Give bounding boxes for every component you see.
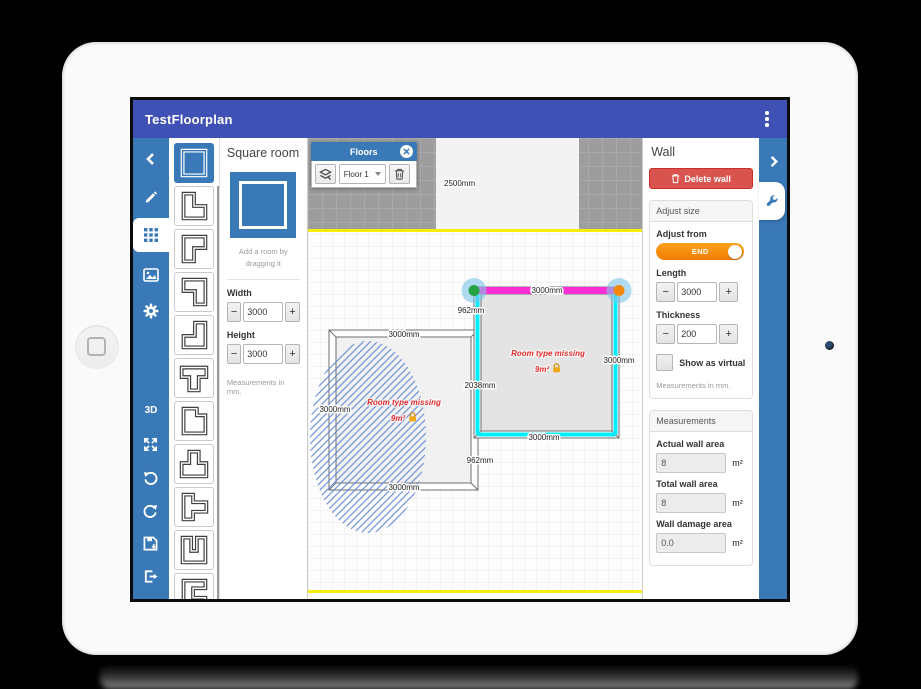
right-toolbar [759,138,787,599]
thickness-minus-button[interactable]: − [656,324,675,344]
tablet-reflection [100,665,858,689]
room-shape-l-notch[interactable] [174,401,214,441]
adjust-from-toggle[interactable]: END [656,243,744,260]
height-label: Height [227,330,300,340]
image-icon [143,268,159,282]
height-stepper: − + [227,344,300,364]
height-minus-button[interactable]: − [227,344,241,364]
kebab-menu-icon[interactable] [759,110,775,128]
width-plus-button[interactable]: + [285,302,299,322]
layers-icon [319,168,332,181]
collapse-right-button[interactable] [759,148,787,174]
save-icon [143,536,158,551]
length-stepper: − + [656,282,746,302]
close-icon[interactable] [400,145,413,158]
collapse-left-button[interactable] [133,144,169,174]
dimension-label: 2038mm [464,381,495,390]
home-button[interactable] [75,325,119,369]
width-label: Width [227,288,300,298]
dimension-label: 962mm [466,456,493,465]
shape-palette [169,138,220,599]
total-wall-area-label: Total wall area [656,479,746,489]
room-shape-l-top-left[interactable] [174,229,214,269]
room-shape-t-down[interactable] [174,358,214,398]
thickness-plus-button[interactable]: + [719,324,738,344]
expand-icon [143,437,158,452]
height-input[interactable] [243,344,283,364]
width-stepper: − + [227,302,300,322]
caret-down-icon [375,172,381,176]
floors-panel-header[interactable]: Floors [311,142,417,161]
floors-panel: Floors Floor 1 [311,142,417,188]
wall-endpoint-start[interactable] [461,278,486,303]
wall-panel-title: Wall [651,145,753,159]
wall-damage-area-label: Wall damage area [656,519,746,529]
room-shape-t-right[interactable] [174,487,214,527]
measurements-group: Measurements Actual wall area m² Total w… [649,410,753,566]
palette-scrollbar[interactable] [217,186,219,599]
room-shape-square[interactable] [174,143,214,183]
total-wall-area-value [656,493,726,513]
dimension-label: 3000mm [319,405,350,414]
adjust-size-group: Adjust size Adjust from END Length − + T… [649,200,753,399]
room-type-warning: Room type missing [367,398,441,407]
rooms-tool-button[interactable] [133,218,169,252]
background-image-button[interactable] [133,260,169,290]
exit-button[interactable] [133,561,169,591]
dimension-label: 3000mm [528,433,559,442]
floorplan-canvas[interactable]: 2500mm 3000mm 962mm 2038mm 962mm 3000mm … [308,138,642,599]
trash-icon [671,173,680,184]
length-minus-button[interactable]: − [656,282,675,302]
toggle-knob [728,245,742,259]
floorplan-app-window: TestFloorplan [130,97,790,602]
unit-label: m² [732,458,743,468]
chevron-right-icon [767,155,780,168]
dimension-label: 3000mm [603,356,634,365]
adjust-from-value: END [692,247,709,256]
exit-icon [143,569,158,584]
wall-damage-area-value [656,533,726,553]
room-shape-t-up[interactable] [174,444,214,484]
app-bar: TestFloorplan [133,100,787,138]
dimension-label: 3000mm [531,286,562,295]
pencil-icon [143,190,158,205]
width-minus-button[interactable]: − [227,302,241,322]
manage-layers-button[interactable] [315,164,336,184]
adjust-from-label: Adjust from [656,229,746,239]
thickness-label: Thickness [656,310,746,320]
app-title: TestFloorplan [145,112,233,127]
measurements-header: Measurements [650,411,752,432]
show-as-virtual-label: Show as virtual [679,358,745,368]
rooms-grid-icon [144,228,158,242]
dimension-label: 3000mm [388,330,419,339]
adjust-size-header: Adjust size [650,201,752,222]
room-shape-e-right[interactable] [174,573,214,599]
room-shape-l-bottom-right[interactable] [174,315,214,355]
view-3d-label: 3D [145,405,158,416]
dimension-label: 962mm [457,306,484,315]
view-3d-button[interactable]: 3D [133,395,169,425]
draw-tool-button[interactable] [133,182,169,212]
settings-button[interactable] [133,296,169,326]
room-shape-l-top-right[interactable] [174,272,214,312]
chevron-left-icon [144,152,158,166]
unit-label: m² [732,498,743,508]
length-plus-button[interactable]: + [719,282,738,302]
undo-icon [143,470,158,485]
trash-icon [394,168,405,180]
actual-wall-area-value [656,453,726,473]
left-toolbar: 3D [133,138,169,599]
show-as-virtual-checkbox[interactable] [656,354,673,371]
room-area-label: 9m² [391,414,406,423]
floors-panel-title: Floors [350,147,378,157]
outside-dimension-label: 2500mm [444,179,475,188]
wall-endpoint-end[interactable] [606,278,631,303]
room-shape-l-bottom-left[interactable] [174,186,214,226]
redo-button[interactable] [133,495,169,525]
length-label: Length [656,268,746,278]
width-input[interactable] [243,302,283,322]
room-area-label: 9m² [535,365,550,374]
room-panel-title: Square room [227,146,300,160]
delete-floor-button[interactable] [389,164,410,184]
height-plus-button[interactable]: + [285,344,299,364]
unit-label: m² [732,538,743,548]
wall-damage-hatch-area[interactable] [310,341,426,533]
floor-select[interactable]: Floor 1 [339,164,386,184]
thickness-stepper: − + [656,324,746,344]
floor-select-value: Floor 1 [344,170,369,179]
room-right[interactable] [474,287,619,438]
thickness-input[interactable] [677,324,717,344]
room-config-panel: Square room Add a room by dragging it Wi… [220,138,308,599]
wall-tool-tab[interactable] [759,182,785,220]
length-input[interactable] [677,282,717,302]
dimension-label: 3000mm [388,483,419,492]
room-type-warning: Room type missing [511,349,585,358]
room-drag-hint: Add a room by dragging it [227,246,300,270]
wall-properties-panel: Wall Delete wall Adjust size Adjust from… [642,138,759,599]
save-button[interactable] [133,528,169,558]
fullscreen-button[interactable] [133,429,169,459]
camera-lens [825,341,834,350]
undo-button[interactable] [133,462,169,492]
floor-bound-top [308,229,642,232]
delete-wall-button[interactable]: Delete wall [649,168,753,189]
wrench-icon [765,194,779,208]
room-panel-note: Measurements in mm. [227,378,300,396]
wall-panel-note: Measurements in mm. [656,381,746,390]
actual-wall-area-label: Actual wall area [656,439,746,449]
gear-icon [143,303,159,319]
floor-bound-bottom [308,590,642,593]
room-shape-u-up[interactable] [174,530,214,570]
redo-icon [143,503,158,518]
room-drag-preview[interactable] [230,172,296,238]
